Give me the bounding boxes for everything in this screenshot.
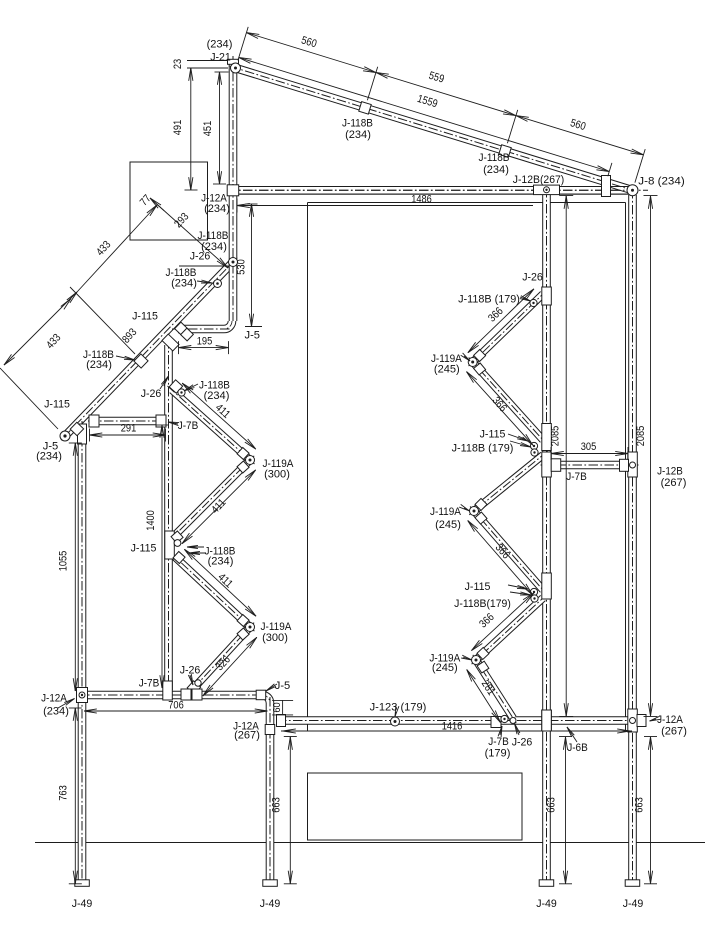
svg-text:J-7B: J-7B [139, 678, 160, 690]
svg-text:2085: 2085 [550, 426, 562, 447]
svg-text:(234): (234) [204, 390, 230, 402]
svg-text:(245): (245) [435, 519, 461, 531]
svg-text:J-118B (179): J-118B (179) [452, 443, 514, 455]
svg-text:706: 706 [168, 700, 184, 712]
svg-text:J-49: J-49 [536, 898, 557, 910]
svg-text:J-115: J-115 [44, 399, 70, 411]
svg-text:433: 433 [44, 332, 63, 352]
svg-text:305: 305 [581, 441, 597, 453]
svg-text:1055: 1055 [58, 551, 70, 572]
svg-text:(234): (234) [208, 556, 234, 568]
svg-text:(300): (300) [264, 469, 290, 481]
svg-text:(234): (234) [483, 164, 509, 176]
svg-text:23: 23 [172, 59, 184, 69]
svg-text:J-7B: J-7B [488, 736, 509, 748]
svg-text:J-12B(267): J-12B(267) [513, 174, 565, 186]
svg-text:2085: 2085 [635, 426, 647, 447]
svg-text:663: 663 [634, 797, 646, 813]
svg-text:491: 491 [172, 120, 184, 136]
svg-text:(245): (245) [434, 364, 460, 376]
svg-text:(179): (179) [485, 748, 511, 760]
svg-text:663: 663 [271, 797, 283, 813]
svg-text:J-115: J-115 [465, 581, 491, 593]
svg-text:(234): (234) [86, 359, 112, 371]
svg-text:(300): (300) [262, 632, 288, 644]
svg-text:J-49: J-49 [260, 898, 281, 910]
svg-text:J-26: J-26 [522, 272, 543, 284]
svg-text:(234): (234) [345, 129, 371, 141]
svg-text:326: 326 [214, 654, 233, 674]
svg-text:1400: 1400 [145, 510, 157, 531]
svg-text:560: 560 [300, 34, 318, 50]
svg-text:J-115: J-115 [132, 311, 158, 323]
svg-text:J-26: J-26 [190, 251, 211, 263]
svg-text:J-49: J-49 [623, 898, 644, 910]
svg-text:530: 530 [236, 259, 248, 275]
svg-text:J-26: J-26 [180, 665, 201, 677]
svg-text:(234): (234) [36, 451, 62, 463]
svg-text:195: 195 [197, 336, 213, 348]
svg-text:(234): (234) [171, 278, 197, 290]
svg-text:J-7B: J-7B [566, 471, 587, 483]
svg-text:J-115: J-115 [480, 429, 506, 441]
svg-text:J-115: J-115 [131, 543, 157, 555]
svg-text:366: 366 [493, 542, 512, 562]
svg-text:411: 411 [213, 402, 233, 421]
svg-text:J-118B: J-118B [342, 118, 373, 130]
svg-text:J-5: J-5 [275, 680, 291, 692]
svg-text:J-119A: J-119A [430, 506, 461, 518]
svg-text:J-118B: J-118B [479, 152, 510, 164]
svg-text:77: 77 [138, 193, 154, 209]
svg-text:J-49: J-49 [72, 898, 93, 910]
svg-text:1559: 1559 [416, 93, 439, 111]
svg-text:1416: 1416 [442, 721, 463, 733]
svg-text:451: 451 [202, 121, 214, 137]
svg-text:J-8 (234): J-8 (234) [638, 176, 684, 188]
svg-text:366: 366 [486, 305, 505, 324]
svg-text:J-7B: J-7B [178, 420, 199, 432]
svg-text:J-118B (179): J-118B (179) [458, 294, 520, 306]
svg-text:J-123 (179): J-123 (179) [370, 702, 427, 714]
svg-text:J-12A: J-12A [657, 714, 683, 726]
svg-text:893: 893 [120, 326, 139, 346]
svg-text:J-12B: J-12B [657, 466, 683, 478]
svg-text:291: 291 [121, 423, 137, 435]
svg-text:763: 763 [58, 785, 70, 801]
svg-text:366: 366 [477, 611, 497, 630]
svg-text:(267): (267) [234, 730, 260, 742]
svg-text:J-12A: J-12A [41, 693, 67, 705]
svg-text:J-26: J-26 [141, 388, 162, 400]
svg-text:(234): (234) [204, 203, 230, 215]
svg-text:J-26: J-26 [512, 737, 533, 749]
svg-text:411: 411 [215, 571, 235, 590]
svg-text:(245): (245) [432, 662, 458, 674]
svg-text:560: 560 [569, 117, 587, 133]
svg-text:(234): (234) [207, 39, 233, 51]
svg-text:(267): (267) [661, 726, 687, 738]
svg-text:559: 559 [427, 70, 445, 86]
svg-text:J-21: J-21 [210, 52, 231, 64]
svg-text:J-5: J-5 [245, 330, 261, 342]
svg-text:60: 60 [272, 702, 283, 713]
svg-text:J-6B: J-6B [567, 742, 588, 754]
svg-text:(234): (234) [43, 706, 69, 718]
svg-text:J-118B(179): J-118B(179) [454, 598, 511, 610]
svg-text:293: 293 [172, 211, 191, 231]
svg-text:(267): (267) [661, 477, 687, 489]
svg-text:1486: 1486 [411, 194, 432, 206]
svg-text:663: 663 [546, 797, 558, 813]
